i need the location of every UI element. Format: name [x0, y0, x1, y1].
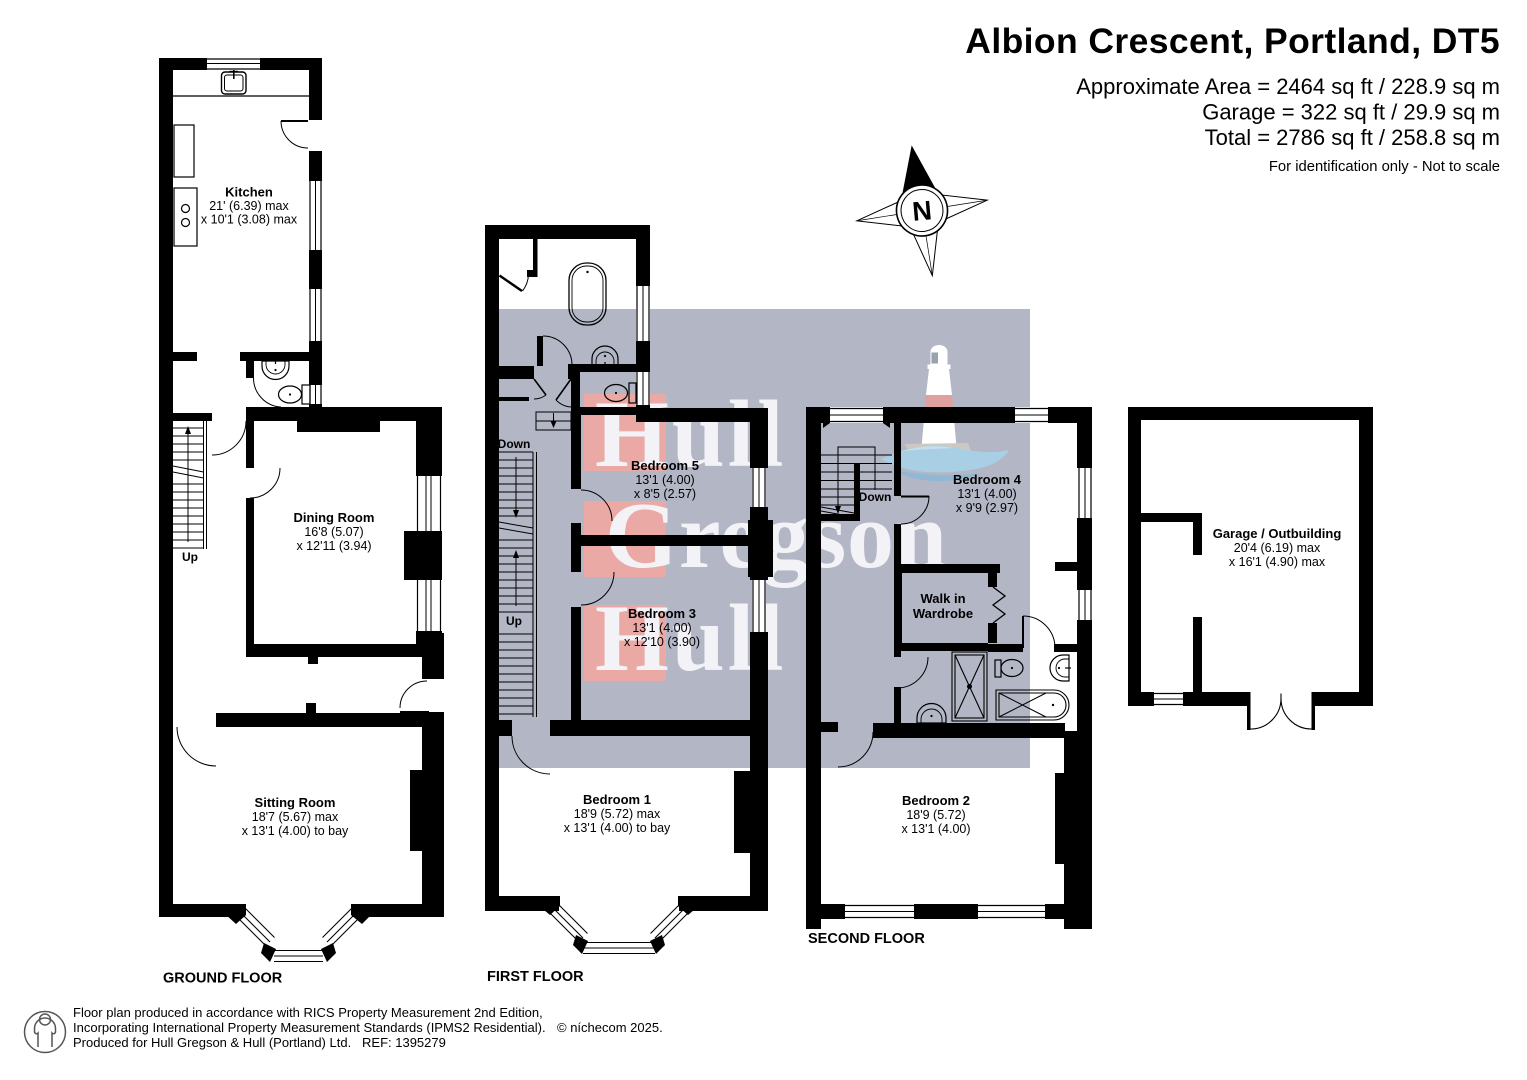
svg-text:x 12'10 (3.90): x 12'10 (3.90) [624, 635, 700, 649]
svg-text:Bedroom 2: Bedroom 2 [902, 793, 970, 808]
svg-text:Total = 2786 sq ft / 258.8 sq: Total = 2786 sq ft / 258.8 sq m [1205, 125, 1500, 150]
svg-text:Albion Crescent, Portland, DT5: Albion Crescent, Portland, DT5 [965, 21, 1500, 61]
svg-text:x 13'1 (4.00) to bay: x 13'1 (4.00) to bay [564, 821, 671, 835]
svg-text:16'8 (5.07): 16'8 (5.07) [304, 525, 363, 539]
svg-text:Walk in: Walk in [920, 591, 965, 606]
svg-text:13'1 (4.00): 13'1 (4.00) [957, 487, 1016, 501]
svg-text:18'9 (5.72): 18'9 (5.72) [906, 808, 965, 822]
svg-text:Garage / Outbuilding: Garage / Outbuilding [1213, 526, 1342, 541]
svg-text:Bedroom 4: Bedroom 4 [953, 472, 1022, 487]
svg-text:Up: Up [182, 550, 198, 564]
svg-text:Bedroom 5: Bedroom 5 [631, 458, 699, 473]
svg-text:x 8'5 (2.57): x 8'5 (2.57) [634, 487, 696, 501]
svg-text:Produced for Hull Gregson & Hu: Produced for Hull Gregson & Hull (Portla… [73, 1035, 446, 1050]
svg-text:13'1 (4.00): 13'1 (4.00) [632, 621, 691, 635]
svg-text:Up: Up [506, 614, 522, 628]
svg-text:GROUND FLOOR: GROUND FLOOR [163, 971, 283, 987]
svg-text:SECOND FLOOR: SECOND FLOOR [808, 931, 925, 947]
svg-text:13'1 (4.00): 13'1 (4.00) [635, 473, 694, 487]
svg-text:FIRST FLOOR: FIRST FLOOR [487, 969, 584, 985]
svg-text:x 12'11 (3.94): x 12'11 (3.94) [296, 539, 371, 553]
svg-text:Down: Down [498, 437, 531, 451]
svg-text:© níchecom 2025.: © níchecom 2025. [557, 1020, 663, 1035]
svg-text:Bedroom 1: Bedroom 1 [583, 792, 651, 807]
svg-text:18'9 (5.72) max: 18'9 (5.72) max [574, 807, 661, 821]
svg-text:x 9'9 (2.97): x 9'9 (2.97) [956, 501, 1018, 515]
svg-text:Wardrobe: Wardrobe [913, 606, 973, 621]
svg-text:x 10'1 (3.08) max: x 10'1 (3.08) max [201, 213, 298, 227]
svg-text:x 16'1 (4.90) max: x 16'1 (4.90) max [1229, 555, 1326, 569]
svg-text:Dining Room: Dining Room [294, 510, 375, 525]
svg-text:18'7 (5.67) max: 18'7 (5.67) max [252, 810, 339, 824]
svg-text:Floor plan produced in accorda: Floor plan produced in accordance with R… [73, 1005, 543, 1020]
svg-text:Kitchen: Kitchen [225, 185, 273, 200]
svg-text:x 13'1 (4.00): x 13'1 (4.00) [901, 822, 970, 836]
svg-text:Approximate Area = 2464 sq ft: Approximate Area = 2464 sq ft / 228.9 sq… [1076, 74, 1500, 99]
svg-text:For identification only - Not: For identification only - Not to scale [1269, 159, 1500, 175]
svg-text:Sitting Room: Sitting Room [255, 795, 336, 810]
svg-text:21' (6.39) max: 21' (6.39) max [209, 199, 289, 213]
svg-text:Incorporating International Pr: Incorporating International Property Mea… [73, 1020, 546, 1035]
svg-text:x 13'1 (4.00) to bay: x 13'1 (4.00) to bay [242, 824, 349, 838]
svg-text:Garage = 322 sq ft / 29.9 sq m: Garage = 322 sq ft / 29.9 sq m [1202, 100, 1500, 125]
svg-text:N: N [911, 195, 933, 227]
svg-text:20'4 (6.19) max: 20'4 (6.19) max [1234, 541, 1321, 555]
svg-text:Bedroom 3: Bedroom 3 [628, 606, 696, 621]
svg-text:Down: Down [859, 490, 892, 504]
